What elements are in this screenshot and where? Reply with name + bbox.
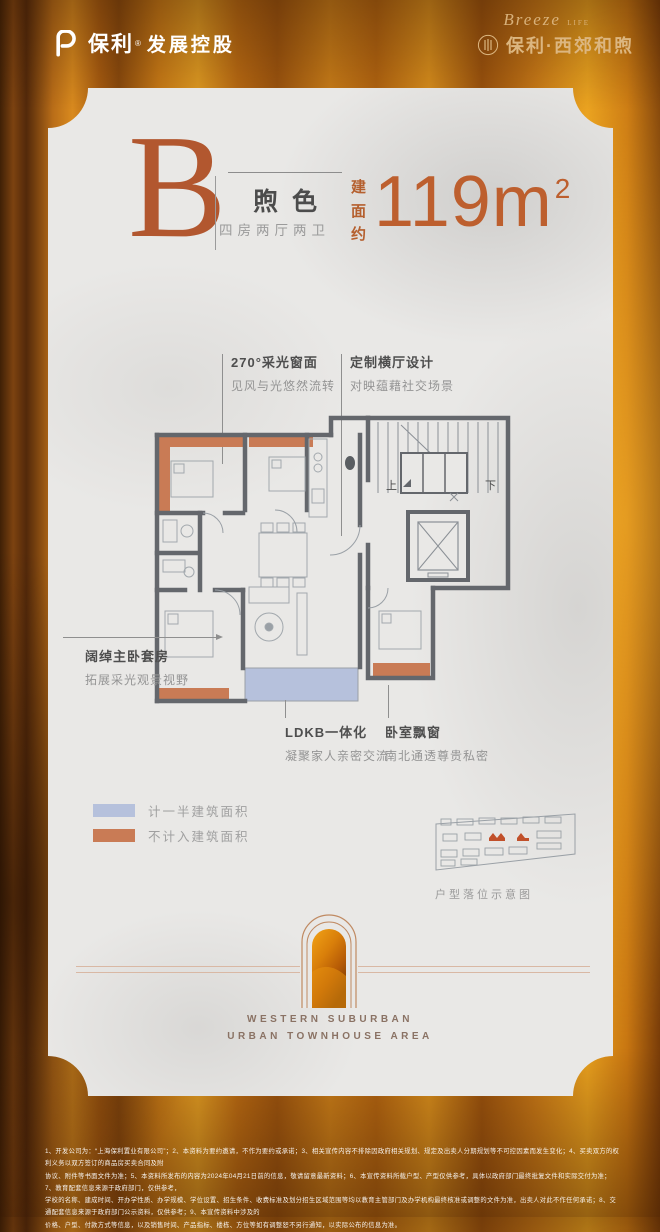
legend-excluded-area: 不计入建筑面积 <box>93 826 250 845</box>
series-name: 煦色 <box>228 182 342 218</box>
arch-window <box>300 902 358 1008</box>
annotation-title: 阔绰主卧套房 <box>85 646 189 665</box>
leader-master-arrow <box>216 634 223 640</box>
area-superscript: 2 <box>555 173 572 204</box>
stairs-up-label: 上 <box>386 479 397 492</box>
disclaimer-line: 学校的名称、建成时间、开办学性质、办学规模、学位设置、招生条件、收费标准及划分招… <box>45 1195 620 1220</box>
stair-landing <box>401 453 467 501</box>
arch-graphic <box>300 902 358 1008</box>
site-location-map <box>433 810 578 878</box>
brand-suffix: 发展控股 <box>147 30 235 57</box>
series-rule <box>228 172 342 173</box>
legend-half-area: 计一半建筑面积 <box>93 801 250 820</box>
annotation-title: LDKB一体化 <box>285 722 389 741</box>
poster-card: B 煦色 四房两厅两卫 建面约 119m2 270°采光窗面 见风与光悠然流转 … <box>48 88 613 1096</box>
leader-ldkb <box>285 700 286 718</box>
annotation-desc: 拓展采光观景视野 <box>85 671 189 688</box>
annotation-ldkb: LDKB一体化 凝聚家人亲密交流 <box>285 722 389 764</box>
title-divider <box>215 176 216 250</box>
brand-emblem-icon <box>477 34 499 56</box>
disclaimer-line: 价格、户型、付款方式等信息，以及销售时间、产品指标、楼栋、方位等如有调整恕不另行… <box>45 1220 620 1232</box>
site-map-caption: 户型落位示意图 <box>435 886 533 902</box>
area-number: 119m <box>374 162 553 242</box>
poly-logo-icon <box>52 30 79 57</box>
site-buildings <box>441 817 561 866</box>
arch-caption-line1: WESTERN SUBURBAN <box>180 1014 480 1025</box>
annotation-window270: 270°采光窗面 见风与光悠然流转 <box>231 352 335 394</box>
annotation-master: 阔绰主卧套房 拓展采光观景视野 <box>85 646 189 688</box>
site-highlight-buildings <box>489 833 529 841</box>
legend-label: 计一半建筑面积 <box>148 801 250 820</box>
brand-script-sub: LIFE <box>567 19 590 27</box>
elevator <box>408 512 468 580</box>
annotation-hall: 定制横厅设计 对映蕴藉社交场景 <box>350 352 454 394</box>
annotation-title: 270°采光窗面 <box>231 352 335 371</box>
floor-plan: 上 下 <box>145 405 530 730</box>
legend-swatch-blue <box>93 804 135 817</box>
annotation-bay: 卧室飘窗 南北通透尊贵私密 <box>385 722 489 764</box>
legend-label: 不计入建筑面积 <box>148 826 250 845</box>
poster: { "header": { "brand_left": {"name": "保利… <box>0 0 660 1217</box>
arch-caption-line2: URBAN TOWNHOUSE AREA <box>180 1031 480 1042</box>
brand-script-text: Breeze <box>503 10 561 29</box>
layout-type: 四房两厅两卫 <box>219 219 330 239</box>
brand-left: 保利® 发展控股 <box>52 28 235 58</box>
plant-decor <box>345 456 355 470</box>
brand-script: Breeze LIFE <box>414 10 634 30</box>
annotation-desc: 南北通透尊贵私密 <box>385 747 489 764</box>
area-value: 119m2 <box>374 166 571 238</box>
annotation-desc: 凝聚家人亲密交流 <box>285 747 389 764</box>
annotation-title: 定制横厅设计 <box>350 352 454 371</box>
stairs-down-label: 下 <box>485 480 496 492</box>
annotation-title: 卧室飘窗 <box>385 722 489 741</box>
area-prefix: 建面约 <box>351 176 368 247</box>
legal-disclaimer: 1、开发公司为：“上海保利置业有限公司”；2、本资料为要约邀请，不作为要约或承诺… <box>45 1146 620 1232</box>
annotation-desc: 对映蕴藉社交场景 <box>350 377 454 394</box>
brand-reg-mark: ® <box>135 39 141 48</box>
legend-swatch-orange <box>93 829 135 842</box>
disclaimer-line: 协议、附件等书面文件为准；5、本资料所发布的内容为2024年04月21日前的信息… <box>45 1171 620 1196</box>
brand-right: Breeze LIFE 保利·西郊和煦 <box>414 10 634 58</box>
unit-letter: B <box>128 113 227 261</box>
leader-master <box>63 637 218 638</box>
project-name: 保利·西郊和煦 <box>506 32 634 58</box>
annotation-desc: 见风与光悠然流转 <box>231 377 335 394</box>
leader-bay <box>388 685 389 718</box>
half-area-balcony <box>245 668 358 701</box>
disclaimer-line: 1、开发公司为：“上海保利置业有限公司”；2、本资料为要约邀请，不作为要约或承诺… <box>45 1146 620 1171</box>
brand-name: 保利 <box>88 28 134 58</box>
